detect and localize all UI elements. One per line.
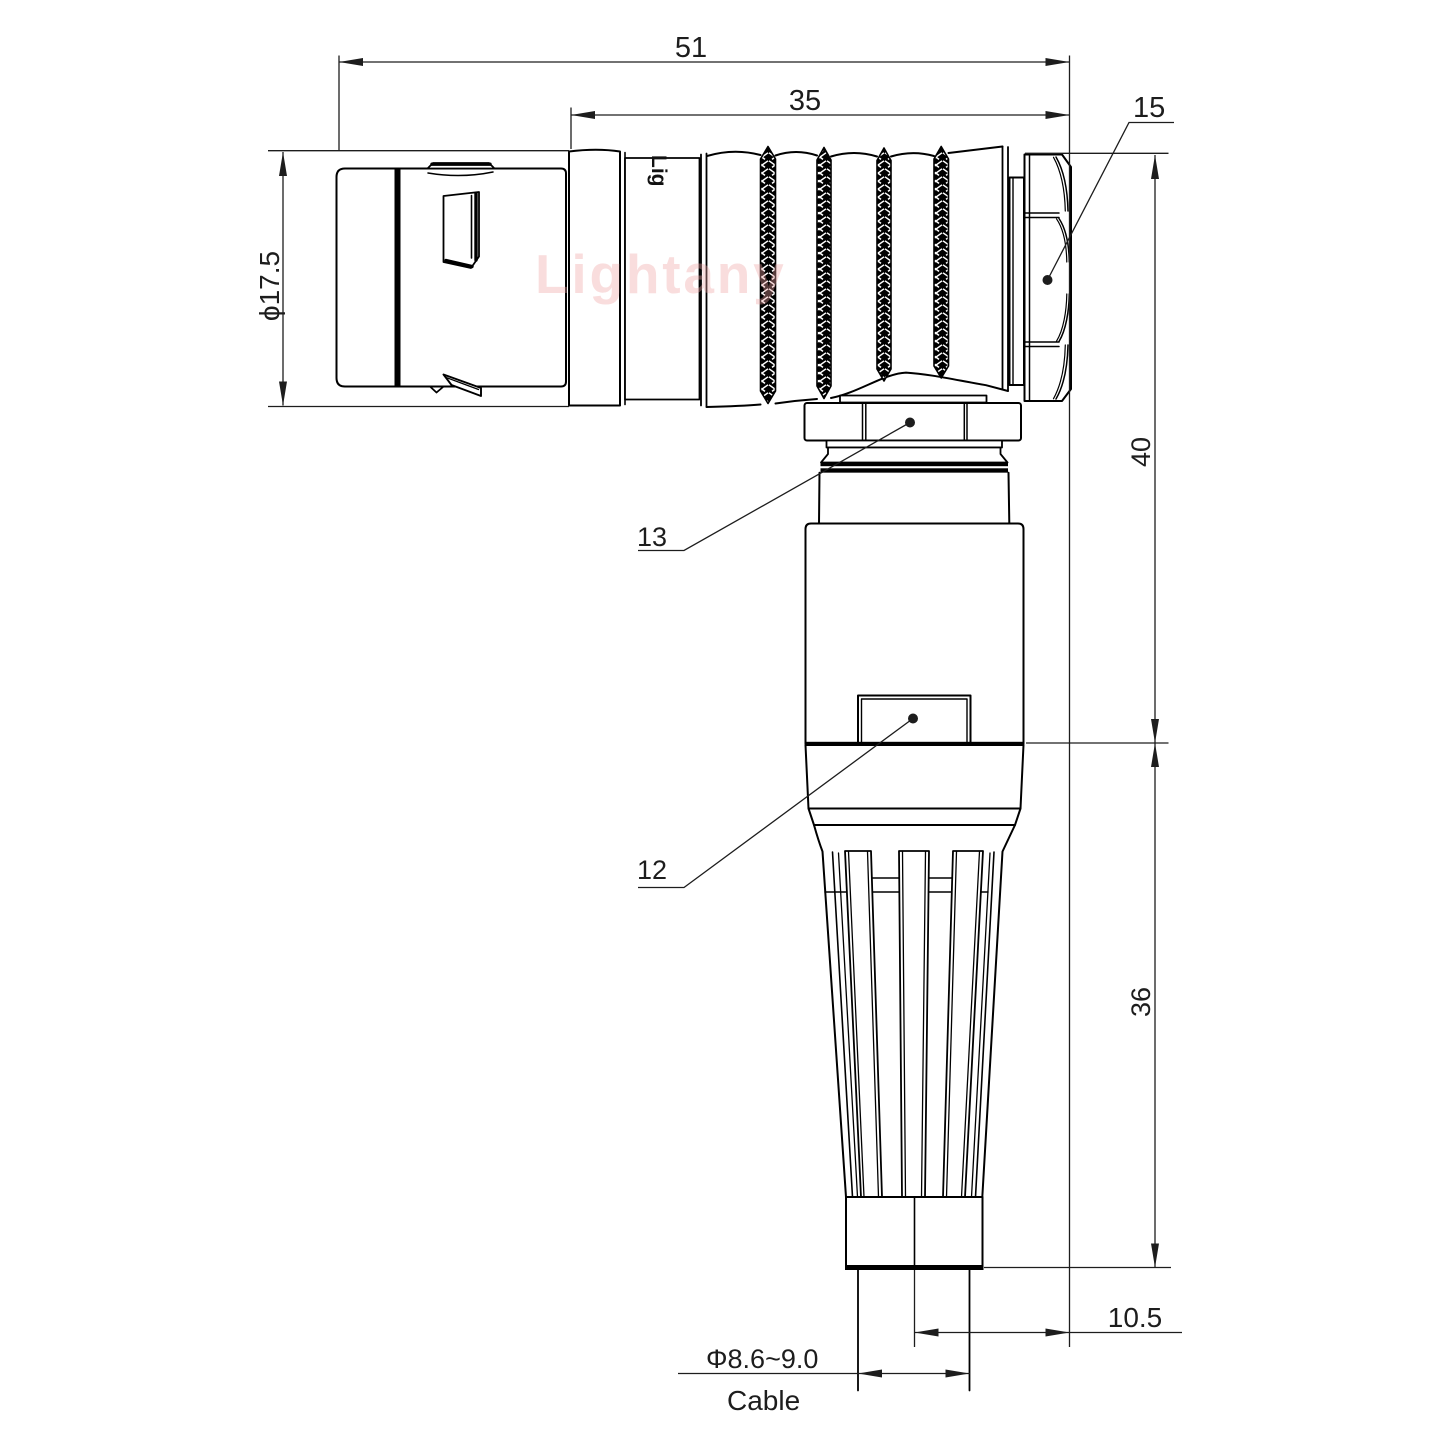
svg-text:51: 51: [675, 32, 707, 64]
svg-text:12: 12: [637, 855, 667, 885]
svg-text:13: 13: [637, 522, 667, 552]
svg-text:10.5: 10.5: [1108, 1302, 1163, 1333]
svg-text:40: 40: [1126, 437, 1156, 467]
svg-text:15: 15: [1133, 92, 1165, 124]
svg-text:Cable: Cable: [727, 1385, 800, 1416]
svg-text:Φ8.6~9.0: Φ8.6~9.0: [706, 1344, 818, 1374]
svg-text:36: 36: [1126, 987, 1156, 1017]
svg-text:ϕ17.5: ϕ17.5: [254, 251, 285, 321]
svg-text:35: 35: [789, 85, 821, 117]
